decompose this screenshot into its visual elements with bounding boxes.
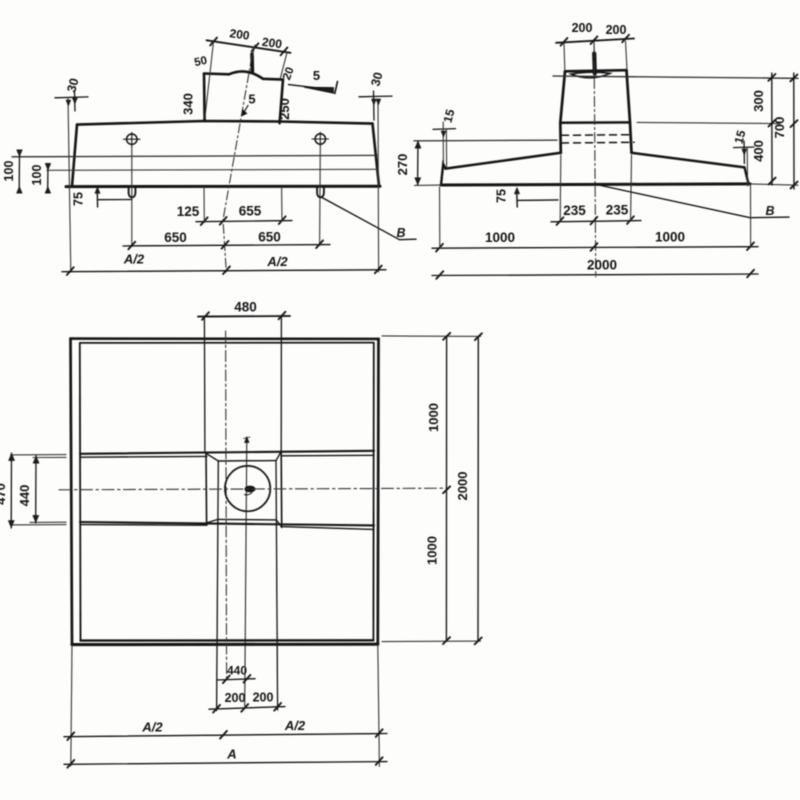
svg-text:5: 5: [313, 68, 320, 83]
svg-text:50: 50: [193, 55, 208, 69]
svg-text:1000: 1000: [485, 230, 515, 245]
svg-text:440: 440: [227, 664, 247, 678]
svg-text:75: 75: [72, 192, 86, 206]
svg-text:200: 200: [261, 35, 283, 52]
svg-text:A: A: [226, 747, 236, 762]
svg-text:340: 340: [181, 93, 196, 115]
svg-text:400: 400: [751, 140, 766, 162]
svg-text:75: 75: [495, 189, 509, 203]
svg-text:250: 250: [277, 98, 292, 120]
svg-text:2000: 2000: [455, 472, 470, 501]
svg-text:480: 480: [234, 300, 257, 315]
svg-text:A/2: A/2: [284, 718, 306, 733]
svg-text:A/2: A/2: [123, 252, 145, 267]
svg-text:655: 655: [239, 204, 262, 219]
svg-text:A/2: A/2: [141, 720, 163, 735]
svg-text:100: 100: [30, 165, 44, 186]
svg-text:700: 700: [772, 117, 787, 139]
svg-text:650: 650: [164, 230, 187, 245]
svg-text:A/2: A/2: [266, 254, 288, 269]
svg-text:5: 5: [248, 92, 255, 107]
svg-text:235: 235: [606, 203, 629, 218]
svg-text:235: 235: [563, 203, 586, 218]
svg-text:200: 200: [225, 691, 246, 705]
svg-text:200: 200: [229, 26, 251, 43]
svg-text:30: 30: [64, 77, 81, 94]
svg-text:470: 470: [0, 483, 8, 505]
svg-text:30: 30: [368, 71, 385, 88]
svg-text:200: 200: [253, 691, 274, 705]
svg-text:1000: 1000: [655, 230, 685, 245]
svg-text:15: 15: [732, 128, 749, 145]
svg-text:2000: 2000: [587, 257, 617, 272]
svg-text:В: В: [765, 204, 774, 218]
svg-text:200: 200: [572, 21, 593, 35]
svg-text:1000: 1000: [424, 536, 439, 565]
svg-text:В: В: [396, 226, 405, 240]
svg-text:200: 200: [606, 23, 627, 37]
svg-text:125: 125: [177, 204, 200, 219]
svg-text:650: 650: [258, 230, 281, 245]
svg-text:270: 270: [395, 154, 410, 176]
svg-text:300: 300: [751, 90, 766, 112]
svg-text:1000: 1000: [426, 403, 441, 432]
svg-text:100: 100: [2, 161, 16, 182]
svg-text:440: 440: [17, 485, 32, 507]
